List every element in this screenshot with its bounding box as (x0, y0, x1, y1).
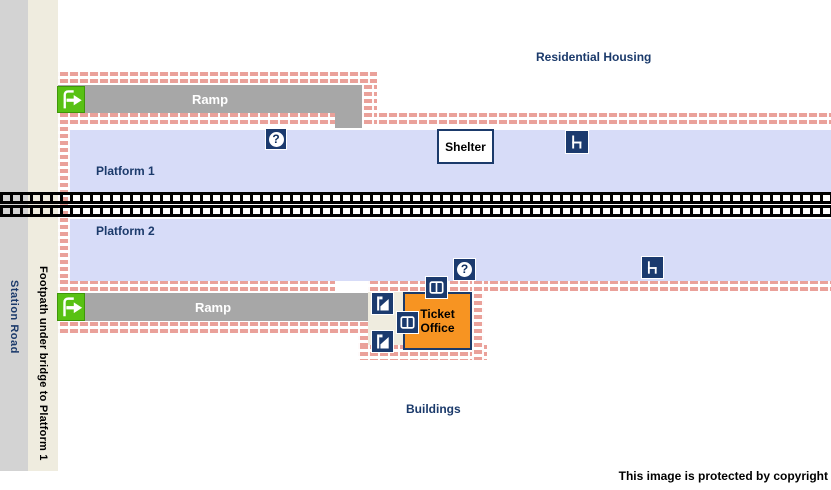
residential-housing-label: Residential Housing (536, 50, 651, 64)
ramp-bottom-label: Ramp (195, 300, 231, 315)
chair-glyph (643, 258, 662, 277)
ticket-machine-glyph (373, 332, 392, 351)
copyright-notice: This image is protected by copyright (619, 469, 828, 483)
brick-wall (58, 280, 335, 293)
brick-wall (58, 72, 377, 85)
rail-line-2 (0, 205, 831, 217)
ramp-top-landing (335, 113, 362, 128)
brick-wall (58, 322, 370, 335)
help-point-icon: ? (453, 258, 476, 281)
door-icon (425, 276, 448, 299)
door-glyph (427, 278, 446, 297)
entrance-arrow-glyph (58, 294, 84, 320)
door-glyph (398, 313, 417, 332)
ticket-machine-icon (371, 292, 394, 315)
platform-1-label: Platform 1 (96, 164, 155, 178)
help-question-glyph: ? (457, 262, 472, 277)
entrance-exit-icon (57, 86, 85, 113)
brick-wall (58, 113, 335, 127)
seat-icon (641, 256, 664, 279)
entrance-exit-icon (57, 293, 85, 321)
shelter-label: Shelter (445, 140, 486, 154)
help-question-glyph: ? (269, 132, 284, 147)
footpath-strip: Footpath under bridge to Platform 1 (28, 0, 58, 471)
platform-2-area (70, 219, 831, 281)
shelter-box: Shelter (437, 129, 494, 164)
footpath-label: Footpath under bridge to Platform 1 (37, 266, 49, 461)
brick-wall (362, 85, 377, 127)
buildings-label: Buildings (406, 402, 461, 416)
help-point-icon: ? (265, 128, 287, 150)
ramp-bottom: Ramp (58, 293, 368, 321)
seat-icon (565, 130, 589, 154)
platform-2-label: Platform 2 (96, 224, 155, 238)
brick-wall (472, 280, 484, 360)
ticket-machine-icon (371, 330, 394, 353)
station-road-strip: Station Road (0, 0, 28, 471)
station-map: Station Road Footpath under bridge to Pl… (0, 0, 831, 490)
ramp-top-label: Ramp (192, 92, 228, 107)
chair-glyph (567, 132, 587, 152)
station-road-label: Station Road (8, 280, 20, 354)
brick-wall (377, 113, 831, 127)
ramp-top: Ramp (58, 85, 362, 113)
railway-track (0, 192, 831, 217)
entrance-arrow-glyph (58, 87, 84, 112)
ticket-machine-glyph (373, 294, 392, 313)
rail-line-1 (0, 192, 831, 204)
door-icon (396, 311, 419, 334)
